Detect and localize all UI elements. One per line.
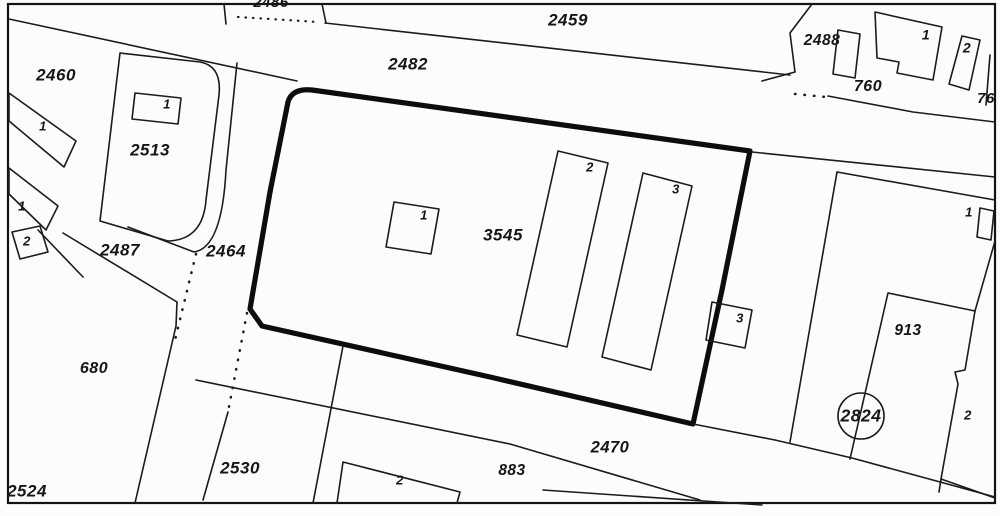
building-1-top-right — [875, 12, 942, 80]
label-strip-1-upper: 1 — [39, 118, 47, 133]
label-3545: 3545 — [483, 225, 523, 244]
building-913-outline — [850, 241, 995, 459]
parcel-2486-left-tick — [224, 4, 226, 24]
label-2488: 2488 — [803, 32, 840, 49]
label-913: 913 — [894, 322, 921, 339]
label-760: 760 — [854, 78, 882, 95]
road-2470-north-boundary — [693, 424, 995, 497]
label-2530: 2530 — [219, 458, 260, 477]
label-680: 680 — [80, 360, 108, 377]
strip-building-lower-left — [9, 168, 58, 230]
label-2486-partial: 2486 — [252, 0, 289, 11]
road-2464-lower-boundary — [203, 412, 228, 500]
parcel-913-north-boundary — [837, 172, 995, 200]
parcel-2530-east-boundary — [313, 346, 343, 503]
building-2-parcel-3545 — [517, 151, 608, 347]
label-small-2-left: 2 — [22, 233, 31, 248]
building-1-right-edge — [977, 208, 994, 240]
label-2524: 2524 — [6, 481, 47, 500]
label-building-1-2513: 1 — [163, 96, 171, 111]
label-76-partial: 76 — [977, 90, 995, 107]
parcel-680-east-boundary — [135, 302, 177, 503]
label-2459: 2459 — [547, 10, 588, 29]
label-building-3-annex: 3 — [736, 310, 744, 325]
cadastral-map: 2486245924822460251324881276076111224872… — [0, 0, 1000, 516]
parcel-2486-right-tick — [322, 4, 326, 23]
label-2464: 2464 — [205, 241, 246, 260]
label-building-1-right: 1 — [965, 204, 973, 219]
road-2464-dotted-east — [228, 313, 247, 412]
block-760-south-boundary — [828, 96, 995, 122]
building-913-east-outline — [939, 311, 975, 492]
parcel-913-west-boundary — [790, 172, 837, 442]
label-building-1-top-right: 1 — [922, 27, 930, 43]
map-canvas: 2486245924822460251324881276076111224872… — [0, 0, 1000, 516]
building-2-bottom-right-south — [941, 479, 995, 498]
label-building-2-top-right: 2 — [962, 40, 971, 56]
label-2470: 2470 — [590, 438, 630, 456]
label-2487: 2487 — [99, 240, 141, 259]
label-strip-1-lower: 1 — [18, 198, 26, 213]
parcel-2486-dotted-boundary — [238, 17, 318, 22]
label-883: 883 — [498, 462, 525, 479]
building-1-parcel-3545 — [386, 202, 439, 254]
parcel-3545-bold-boundary — [250, 90, 750, 424]
label-2513: 2513 — [129, 140, 170, 159]
building-1-parcel-2513 — [132, 93, 181, 124]
block-760-dotted-boundary — [795, 94, 826, 97]
label-building-1-3545: 1 — [420, 207, 428, 222]
road-2464-dotted-west — [175, 254, 196, 340]
road-north-of-913 — [752, 152, 995, 177]
map-frame-border — [8, 4, 995, 503]
label-building-2-3545: 2 — [585, 159, 594, 174]
label-building-2-bottom-right: 2 — [963, 407, 972, 422]
label-2482: 2482 — [387, 54, 428, 73]
label-2460: 2460 — [35, 65, 76, 84]
label-building-3-3545: 3 — [672, 181, 680, 196]
building-3-parcel-3545 — [602, 173, 692, 370]
label-2824: 2824 — [840, 406, 882, 426]
label-building-2-bottom-center: 2 — [395, 472, 404, 487]
